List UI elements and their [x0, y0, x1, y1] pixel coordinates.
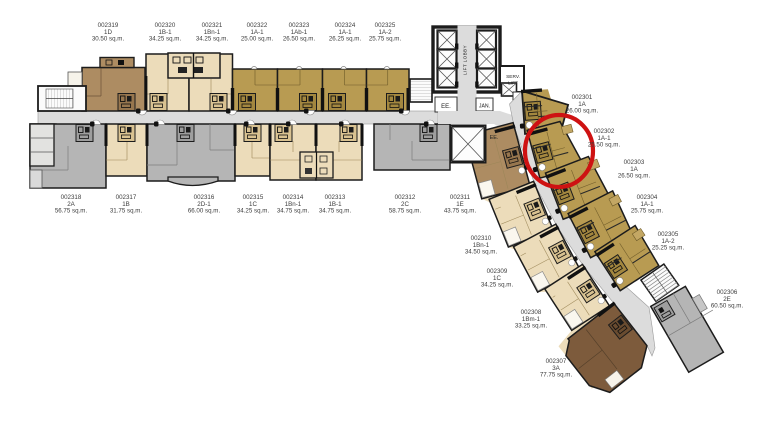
svg-text:34.25 sq.m.: 34.25 sq.m.	[149, 36, 182, 43]
svg-text:43.75 sq.m.: 43.75 sq.m.	[444, 208, 477, 215]
svg-text:EE.: EE.	[441, 104, 451, 110]
svg-text:60.50 sq.m.: 60.50 sq.m.	[711, 303, 744, 310]
svg-text:77.75 sq.m.: 77.75 sq.m.	[540, 372, 573, 379]
svg-text:25.00 sq.m.: 25.00 sq.m.	[241, 36, 274, 43]
svg-text:25.50 sq.m.: 25.50 sq.m.	[588, 142, 621, 149]
svg-text:26.00 sq.m.: 26.00 sq.m.	[566, 108, 599, 115]
svg-text:31.75 sq.m.: 31.75 sq.m.	[110, 208, 143, 215]
svg-text:25.75 sq.m.: 25.75 sq.m.	[631, 208, 664, 215]
svg-text:SERV.: SERV.	[506, 74, 520, 80]
svg-text:66.00 sq.m.: 66.00 sq.m.	[188, 208, 221, 215]
svg-text:34.25 sq.m.: 34.25 sq.m.	[481, 282, 514, 289]
svg-text:33.25 sq.m.: 33.25 sq.m.	[515, 323, 548, 330]
svg-text:26.25 sq.m.: 26.25 sq.m.	[329, 36, 362, 43]
svg-text:34.75 sq.m.: 34.75 sq.m.	[319, 208, 352, 215]
svg-text:58.75 sq.m.: 58.75 sq.m.	[389, 208, 422, 215]
svg-text:EE.: EE.	[490, 135, 499, 141]
svg-text:25.25 sq.m.: 25.25 sq.m.	[652, 245, 685, 252]
svg-text:26.50 sq.m.: 26.50 sq.m.	[618, 173, 651, 180]
svg-text:34.25 sq.m.: 34.25 sq.m.	[196, 36, 229, 43]
svg-text:34.25 sq.m.: 34.25 sq.m.	[237, 208, 270, 215]
svg-text:34.50 sq.m.: 34.50 sq.m.	[465, 249, 498, 256]
svg-text:JAN.: JAN.	[479, 104, 490, 110]
svg-text:34.75 sq.m.: 34.75 sq.m.	[277, 208, 310, 215]
svg-text:26.50 sq.m.: 26.50 sq.m.	[283, 36, 316, 43]
svg-text:56.75 sq.m.: 56.75 sq.m.	[55, 208, 88, 215]
svg-text:30.50 sq.m.: 30.50 sq.m.	[92, 36, 125, 43]
svg-text:LIFT LOBBY: LIFT LOBBY	[463, 45, 468, 75]
svg-text:25.75 sq.m.: 25.75 sq.m.	[369, 36, 402, 43]
svg-text:LIFT: LIFT	[508, 81, 518, 87]
